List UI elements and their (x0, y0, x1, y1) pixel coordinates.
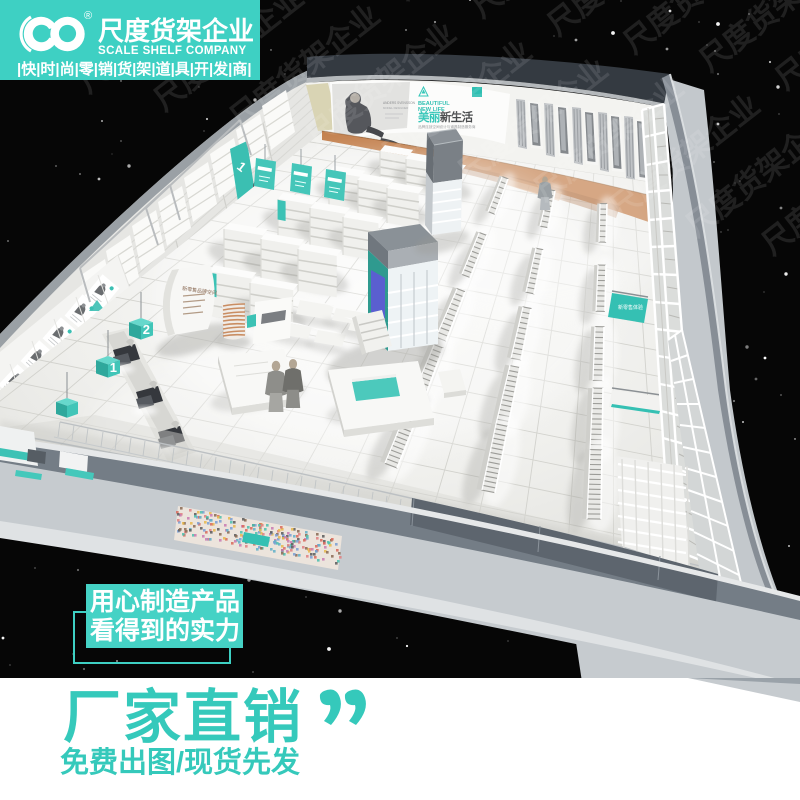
svg-text:2: 2 (143, 322, 150, 337)
svg-text:ANDERS SVENSSON: ANDERS SVENSSON (383, 101, 416, 105)
svg-text:SCALE SHELF COMPANY: SCALE SHELF COMPANY (98, 45, 247, 57)
svg-text:1: 1 (110, 360, 117, 375)
svg-text:MODEL DESIGNER: MODEL DESIGNER (383, 106, 408, 110)
svg-text:免费出图/现货先发: 免费出图/现货先发 (60, 745, 300, 779)
svg-text:看得到的实力: 看得到的实力 (90, 616, 240, 645)
svg-text:尺度货架企业: 尺度货架企业 (98, 16, 254, 46)
svg-text:®: ® (84, 10, 92, 22)
svg-text:|快|时|尚|零|销|货|架|道|具|开|发|商|: |快|时|尚|零|销|货|架|道|具|开|发|商| (17, 60, 252, 78)
svg-text:厂家直销: 厂家直销 (63, 685, 303, 750)
svg-text:新零售体验: 新零售体验 (618, 304, 643, 311)
svg-text:用心制造产品: 用心制造产品 (90, 588, 240, 616)
